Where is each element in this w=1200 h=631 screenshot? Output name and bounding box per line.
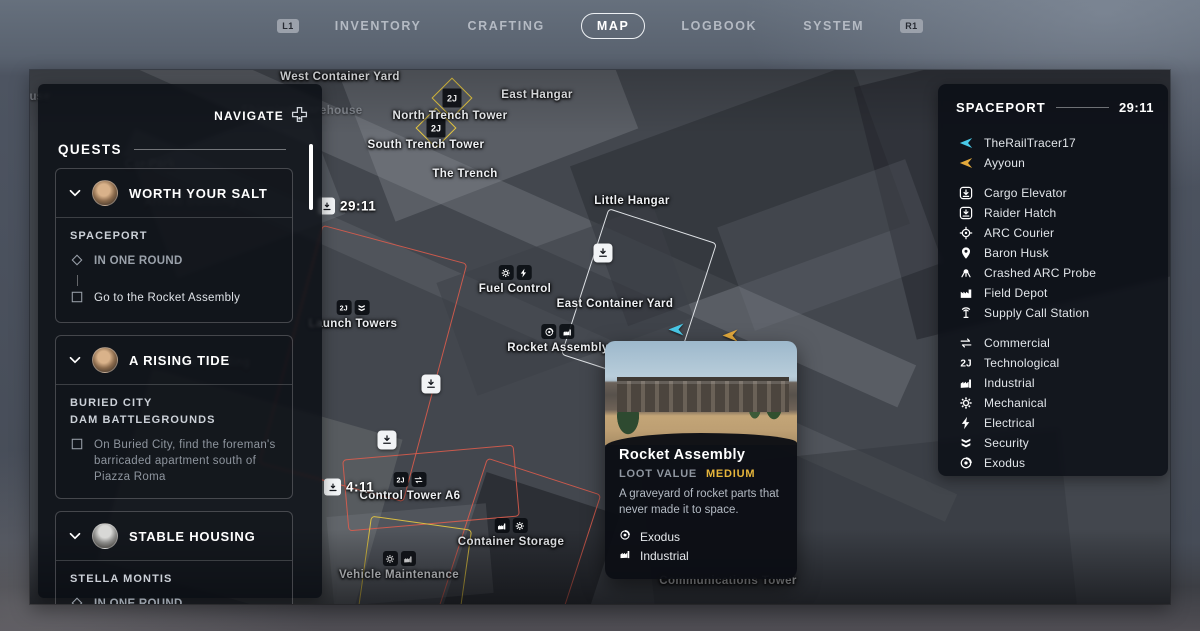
legend-item-security: Security bbox=[938, 433, 1168, 453]
svg-text:2J: 2J bbox=[397, 476, 405, 484]
svg-text:2J: 2J bbox=[340, 304, 348, 312]
quest-giver-avatar bbox=[92, 347, 118, 373]
legend-label: Technological bbox=[984, 356, 1059, 370]
chevron-down-icon[interactable] bbox=[69, 184, 81, 202]
commercial-icon bbox=[412, 472, 427, 487]
legend-divider bbox=[1056, 107, 1109, 108]
quest-title: A RISING TIDE bbox=[129, 353, 230, 368]
quest-location: STELLA MONTIS bbox=[70, 571, 278, 588]
legend-label: Exodus bbox=[984, 456, 1025, 470]
industrial-icon bbox=[559, 324, 574, 339]
map-label-east-container-yard[interactable]: East Container Yard bbox=[557, 298, 674, 310]
industrial-icon bbox=[401, 551, 416, 566]
legend-item-technological: 2JTechnological bbox=[938, 353, 1168, 373]
raider-hatch-icon[interactable] bbox=[594, 244, 613, 263]
legend-item-supply-call-station: Supply Call Station bbox=[938, 303, 1168, 323]
legend-item-industrial: Industrial bbox=[938, 373, 1168, 393]
map-label-north-trench-tower[interactable]: North Trench Tower bbox=[393, 110, 508, 122]
legend-item-therailtracer17: TheRailTracer17 bbox=[938, 133, 1168, 153]
bolt-icon bbox=[958, 415, 974, 431]
round-timer: 29:11 bbox=[1119, 100, 1154, 115]
map-label-fuel-control[interactable]: Fuel Control bbox=[479, 265, 552, 295]
legend-label: Crashed ARC Probe bbox=[984, 266, 1096, 280]
legend-item-field-depot: Field Depot bbox=[938, 283, 1168, 303]
tooltip-title: Rocket Assembly bbox=[619, 447, 783, 463]
raider-hatch-icon[interactable] bbox=[378, 431, 397, 450]
chevron-down-icon[interactable] bbox=[69, 527, 81, 545]
raider-hatch-icon[interactable] bbox=[422, 375, 441, 394]
bolt-icon bbox=[516, 265, 531, 280]
navigate-label: NAVIGATE bbox=[214, 109, 284, 123]
r1-bumper-icon[interactable]: R1 bbox=[900, 19, 923, 33]
legend-label: Field Depot bbox=[984, 286, 1048, 300]
quest-giver-avatar bbox=[92, 180, 118, 206]
tech-icon: 2J bbox=[394, 472, 409, 487]
pin-icon bbox=[958, 245, 974, 261]
gear-icon bbox=[498, 265, 513, 280]
map-label-west-container-yard[interactable]: West Container Yard bbox=[280, 71, 400, 83]
quests-scrollbar[interactable] bbox=[309, 144, 313, 210]
player-arrow-icon bbox=[958, 135, 974, 151]
security-icon bbox=[958, 435, 974, 451]
legend-title: SPACEPORT bbox=[956, 100, 1046, 115]
svg-text:2J: 2J bbox=[960, 359, 971, 370]
tech-icon: 2J bbox=[336, 300, 351, 315]
gear-icon bbox=[383, 551, 398, 566]
quest-title: STABLE HOUSING bbox=[129, 529, 256, 544]
legend-item-electrical: Electrical bbox=[938, 413, 1168, 433]
round-label: IN ONE ROUND bbox=[94, 596, 183, 604]
round-diamond-icon bbox=[70, 253, 84, 272]
legend-item-arc-courier: ARC Courier bbox=[938, 223, 1168, 243]
navigate-button[interactable]: NAVIGATE bbox=[214, 106, 308, 126]
gear-icon bbox=[512, 518, 527, 533]
map-label-vehicle-maintenance[interactable]: Vehicle Maintenance bbox=[339, 551, 459, 581]
legend-item-exodus: Exodus bbox=[938, 453, 1168, 473]
location-legend-panel: SPACEPORT 29:11 TheRailTracer17Ayyoun Ca… bbox=[938, 84, 1168, 476]
legend-item-ayyoun: Ayyoun bbox=[938, 153, 1168, 173]
nav-tab-map[interactable]: MAP bbox=[581, 13, 646, 39]
exodus-icon bbox=[958, 455, 974, 471]
location-tooltip: Rocket Assembly LOOT VALUE MEDIUM A grav… bbox=[605, 341, 797, 579]
arc-courier-icon bbox=[958, 225, 974, 241]
commercial-icon bbox=[958, 335, 974, 351]
round-diamond-icon bbox=[70, 596, 84, 604]
objective-checkbox[interactable] bbox=[70, 290, 84, 309]
exodus-icon bbox=[619, 528, 631, 546]
map-label-rocket-assembly[interactable]: Rocket Assembly bbox=[507, 324, 608, 354]
dpad-icon bbox=[291, 106, 308, 126]
loot-value-label: LOOT VALUE bbox=[619, 468, 697, 480]
antenna-icon bbox=[958, 305, 974, 321]
quests-header: QUESTS bbox=[58, 142, 122, 157]
quest-card-stable-housing[interactable]: STABLE HOUSINGSTELLA MONTISIN ONE ROUNDG… bbox=[55, 511, 293, 604]
industrial-icon bbox=[619, 547, 631, 565]
legend-label: Ayyoun bbox=[984, 156, 1025, 170]
legend-label: Baron Husk bbox=[984, 246, 1049, 260]
exodus-icon bbox=[541, 324, 556, 339]
map-timer: 29:11 bbox=[318, 198, 376, 215]
security-icon bbox=[354, 300, 369, 315]
legend-label: Cargo Elevator bbox=[984, 186, 1067, 200]
legend-label: Raider Hatch bbox=[984, 206, 1056, 220]
gear-icon bbox=[958, 395, 974, 411]
map-label-south-trench-tower[interactable]: South Trench Tower bbox=[368, 139, 485, 151]
legend-label: Commercial bbox=[984, 336, 1050, 350]
legend-item-raider-hatch: Raider Hatch bbox=[938, 203, 1168, 223]
raider-hatch-icon bbox=[958, 205, 974, 221]
depot-icon bbox=[958, 285, 974, 301]
cargo-elevator-icon bbox=[958, 185, 974, 201]
quests-panel: NAVIGATE QUESTS WORTH YOUR SALTSPACEPORT… bbox=[38, 84, 322, 598]
nav-tab-crafting[interactable]: CRAFTING bbox=[457, 13, 554, 39]
tooltip-description: A graveyard of rocket parts that never m… bbox=[619, 487, 789, 518]
quest-card-a-rising-tide[interactable]: A RISING TIDEBURIED CITYDAM BATTLEGROUND… bbox=[55, 335, 293, 499]
location-photo bbox=[605, 341, 797, 445]
legend-item-cargo-elevator: Cargo Elevator bbox=[938, 183, 1168, 203]
nav-tab-inventory[interactable]: INVENTORY bbox=[325, 13, 432, 39]
tooltip-tag-exodus: Exodus bbox=[619, 527, 783, 546]
nav-tab-logbook[interactable]: LOGBOOK bbox=[671, 13, 767, 39]
map-label-the-trench[interactable]: The Trench bbox=[432, 168, 497, 180]
player-arrow-icon bbox=[668, 323, 685, 342]
cargo-elevator-icon bbox=[324, 479, 341, 496]
map-label-east-hangar[interactable]: East Hangar bbox=[501, 89, 573, 101]
quest-giver-avatar bbox=[92, 523, 118, 549]
map-label-control-tower-a6[interactable]: 2JControl Tower A6 bbox=[360, 472, 461, 502]
legend-item-baron-husk: Baron Husk bbox=[938, 243, 1168, 263]
map-timer: 4:11 bbox=[324, 479, 374, 496]
legend-item-commercial: Commercial bbox=[938, 333, 1168, 353]
header-divider bbox=[134, 149, 286, 150]
l1-bumper-icon[interactable]: L1 bbox=[277, 19, 299, 33]
legend-label: Industrial bbox=[984, 376, 1035, 390]
nav-tab-system[interactable]: SYSTEM bbox=[793, 13, 874, 39]
legend-label: Supply Call Station bbox=[984, 306, 1089, 320]
quest-location: BURIED CITYDAM BATTLEGROUNDS bbox=[70, 395, 278, 429]
probe-icon bbox=[958, 265, 974, 281]
legend-item-mechanical: Mechanical bbox=[938, 393, 1168, 413]
legend-label: ARC Courier bbox=[984, 226, 1054, 240]
legend-label: Mechanical bbox=[984, 396, 1047, 410]
legend-label: Security bbox=[984, 436, 1029, 450]
top-nav-bar: L1 INVENTORYCRAFTINGMAPLOGBOOKSYSTEM R1 bbox=[0, 13, 1200, 39]
objective-checkbox[interactable] bbox=[70, 437, 84, 456]
industrial-icon bbox=[494, 518, 509, 533]
legend-item-crashed-arc-probe: Crashed ARC Probe bbox=[938, 263, 1168, 283]
loot-value-badge: MEDIUM bbox=[706, 468, 755, 480]
map-viewport[interactable]: West Container YardShipping WarehouseCar… bbox=[30, 70, 1170, 604]
tech-icon: 2J bbox=[958, 355, 974, 371]
objective-text: On Buried City, find the foreman's barri… bbox=[94, 437, 278, 485]
industrial-icon bbox=[958, 375, 974, 391]
quest-location: SPACEPORT bbox=[70, 228, 278, 245]
tooltip-tag-industrial: Industrial bbox=[619, 546, 783, 565]
chevron-down-icon[interactable] bbox=[69, 351, 81, 369]
map-label-container-storage[interactable]: Container Storage bbox=[458, 518, 564, 548]
map-label-little-hangar[interactable]: Little Hangar bbox=[594, 195, 670, 207]
legend-label: TheRailTracer17 bbox=[984, 136, 1076, 150]
quest-card-worth-your-salt[interactable]: WORTH YOUR SALTSPACEPORTIN ONE ROUNDGo t… bbox=[55, 168, 293, 323]
legend-label: Electrical bbox=[984, 416, 1035, 430]
quest-title: WORTH YOUR SALT bbox=[129, 186, 268, 201]
round-label: IN ONE ROUND bbox=[94, 253, 183, 269]
objective-text: Go to the Rocket Assembly bbox=[94, 290, 240, 306]
player-arrow-icon bbox=[958, 155, 974, 171]
